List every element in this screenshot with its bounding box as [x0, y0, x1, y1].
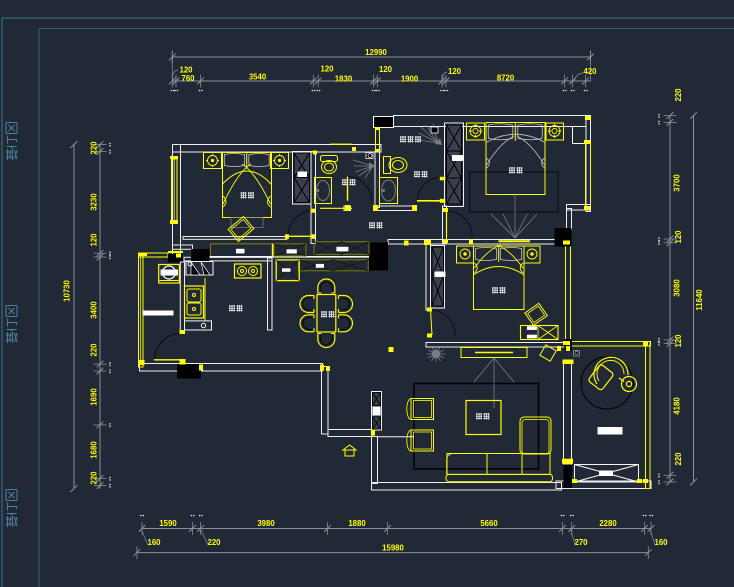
svg-text:8720: 8720 [497, 74, 515, 83]
svg-text:5660: 5660 [480, 519, 498, 528]
svg-text:120: 120 [674, 230, 683, 244]
svg-text:11640: 11640 [695, 289, 704, 311]
svg-text:3540: 3540 [249, 73, 267, 82]
svg-text:120: 120 [90, 233, 99, 247]
svg-text:120: 120 [674, 334, 683, 348]
svg-text:760: 760 [181, 74, 195, 83]
svg-text:220: 220 [674, 88, 683, 102]
svg-text:120: 120 [379, 65, 393, 74]
svg-text:3700: 3700 [673, 174, 682, 192]
svg-text:10730: 10730 [63, 279, 72, 301]
svg-text:3230: 3230 [90, 193, 99, 211]
svg-text:12990: 12990 [365, 48, 387, 57]
svg-text:220: 220 [674, 452, 683, 466]
svg-text:220: 220 [90, 141, 99, 155]
svg-text:3980: 3980 [257, 519, 275, 528]
svg-text:3400: 3400 [90, 301, 99, 319]
svg-text:15980: 15980 [382, 544, 404, 553]
svg-text:420: 420 [583, 67, 597, 76]
svg-text:160: 160 [147, 538, 161, 547]
svg-text:1690: 1690 [90, 388, 99, 406]
svg-text:1900: 1900 [401, 75, 419, 84]
svg-text:1680: 1680 [90, 441, 99, 459]
svg-text:2280: 2280 [599, 519, 617, 528]
svg-text:120: 120 [448, 67, 462, 76]
svg-text:220: 220 [90, 471, 99, 485]
svg-text:120: 120 [320, 65, 334, 74]
svg-text:220: 220 [207, 538, 221, 547]
svg-text:160: 160 [654, 538, 668, 547]
svg-text:1590: 1590 [159, 519, 177, 528]
svg-text:3080: 3080 [673, 279, 682, 297]
svg-text:270: 270 [574, 538, 588, 547]
svg-text:220: 220 [90, 343, 99, 357]
svg-text:4180: 4180 [673, 397, 682, 415]
svg-text:1880: 1880 [348, 519, 366, 528]
svg-text:1830: 1830 [335, 75, 353, 84]
